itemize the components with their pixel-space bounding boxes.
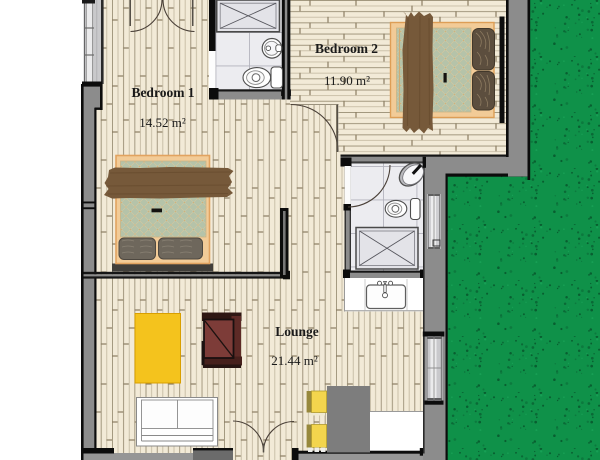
svg-text:21.44 m²: 21.44 m² <box>271 353 318 368</box>
svg-text:Lounge: Lounge <box>275 324 319 339</box>
svg-text:11.90 m²: 11.90 m² <box>324 73 370 88</box>
svg-text:Bedroom 1: Bedroom 1 <box>131 85 194 100</box>
svg-text:14.52 m²: 14.52 m² <box>139 115 186 130</box>
svg-text:Bedroom 2: Bedroom 2 <box>315 41 378 56</box>
